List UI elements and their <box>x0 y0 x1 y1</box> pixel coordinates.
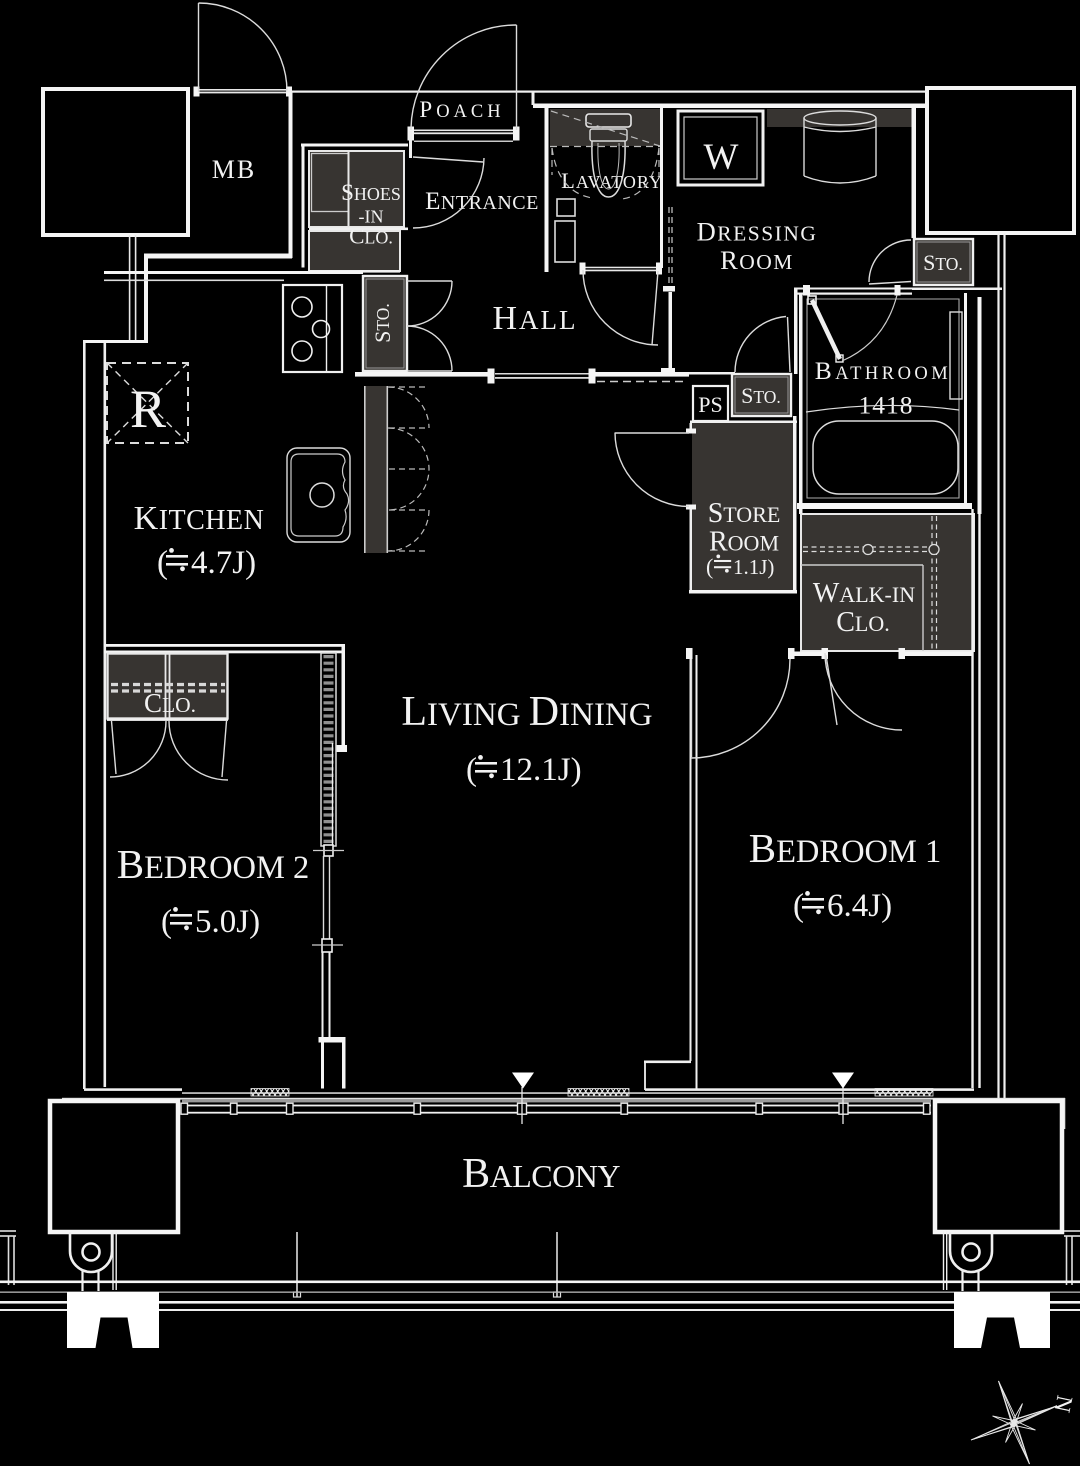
svg-text:DRESSING: DRESSING <box>697 217 818 247</box>
svg-text:R: R <box>130 379 166 439</box>
svg-text:MB: MB <box>212 155 256 184</box>
svg-text:STORE: STORE <box>708 498 781 529</box>
svg-text:ENTRANCE: ENTRANCE <box>425 188 539 215</box>
svg-text:BALCONY: BALCONY <box>462 1151 620 1197</box>
svg-text:4.7J): 4.7J) <box>191 545 256 581</box>
svg-text:CLO.: CLO. <box>349 224 393 249</box>
svg-text:STO.: STO. <box>741 383 781 408</box>
svg-text:STO.: STO. <box>923 250 963 275</box>
svg-text:STO.: STO. <box>370 303 395 343</box>
svg-text:ROOM: ROOM <box>709 527 779 558</box>
svg-text:1.1J): 1.1J) <box>733 555 774 579</box>
svg-text:KITCHEN: KITCHEN <box>134 500 265 537</box>
svg-text:WALK-IN: WALK-IN <box>813 578 915 609</box>
svg-text:SHOES: SHOES <box>341 180 401 205</box>
svg-text:(: ( <box>706 554 713 579</box>
svg-text:5.0J): 5.0J) <box>195 904 260 940</box>
svg-text:12.1J): 12.1J) <box>500 752 582 788</box>
svg-text:CLO.: CLO. <box>836 607 890 638</box>
svg-text:6.4J): 6.4J) <box>827 888 892 924</box>
svg-text:HALL: HALL <box>492 300 577 337</box>
svg-text:W: W <box>704 137 739 178</box>
svg-text:PS: PS <box>698 392 722 417</box>
svg-text:ROOM: ROOM <box>720 245 794 275</box>
svg-text:LAVATORY: LAVATORY <box>561 168 663 193</box>
